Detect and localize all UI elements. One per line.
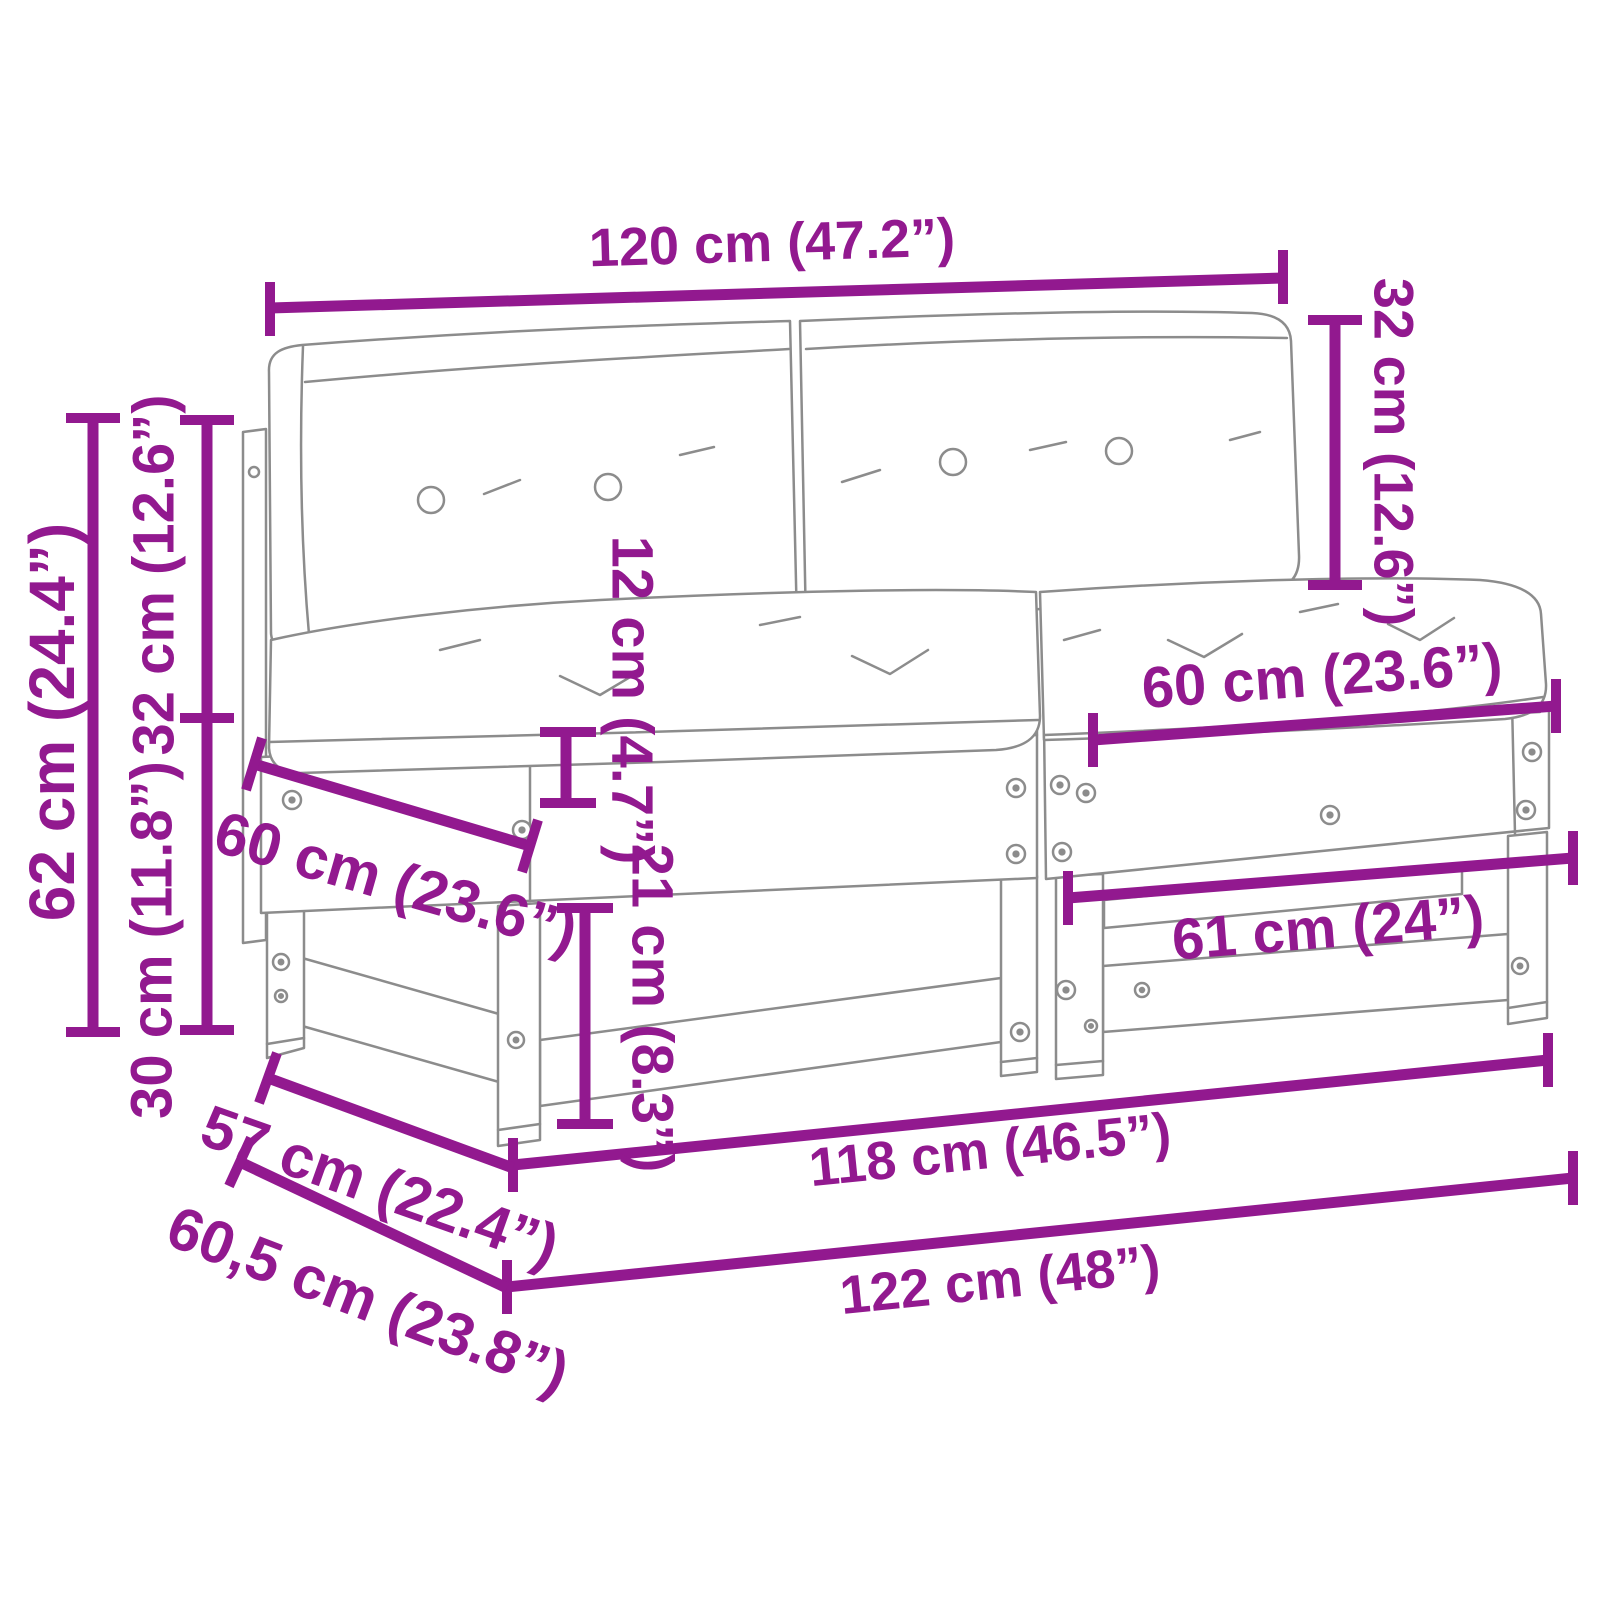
label-cushion-thickness: 12 cm (4.7”) [600, 536, 665, 865]
screw-icon [1135, 983, 1149, 997]
sofa-sketch [243, 312, 1549, 1146]
screw-icon [275, 990, 287, 1002]
rail-side-left [274, 950, 499, 1082]
label-base-height: 30 cm (11.8”) [120, 761, 185, 1119]
label-clearance-height: 21 cm (8.3”) [620, 844, 685, 1173]
dimension-diagram: 120 cm (47.2”) 32 cm (12.6”) 62 cm (24.4… [0, 0, 1600, 1600]
sofa-dimension-svg: 120 cm (47.2”) 32 cm (12.6”) 62 cm (24.4… [0, 0, 1600, 1600]
screw-icon [273, 954, 289, 970]
label-back-cushion-height: 32 cm (12.6”) [1363, 278, 1426, 627]
screw-icon [1051, 776, 1069, 794]
screw-icon [1007, 845, 1025, 863]
screw-icon [1512, 958, 1528, 974]
back-cushion-right [800, 312, 1299, 627]
screw-icon [1085, 1020, 1097, 1032]
screw-icon [1011, 1023, 1029, 1041]
screw-icon [1523, 743, 1541, 761]
screw-icon [283, 791, 301, 809]
dim-backrest-and-base-height [180, 420, 234, 1030]
screw-icon [1007, 779, 1025, 797]
leg-rear-left [267, 905, 304, 1058]
screw-icon [1321, 806, 1339, 824]
screw-icon [1057, 981, 1075, 999]
label-overall-height: 62 cm (24.4”) [16, 523, 88, 921]
dim-back-cushion-height [1308, 320, 1362, 585]
screw-icon [1077, 784, 1095, 802]
label-backrest-height: 32 cm (12.6”) [122, 394, 187, 755]
rail-front-left-module [540, 978, 1001, 1106]
leg-seam-left [1001, 876, 1037, 1076]
label-back-width: 120 cm (47.2”) [588, 208, 956, 279]
screw-icon [1053, 843, 1071, 861]
screw-icon [1517, 801, 1535, 819]
screw-icon [508, 1032, 524, 1048]
